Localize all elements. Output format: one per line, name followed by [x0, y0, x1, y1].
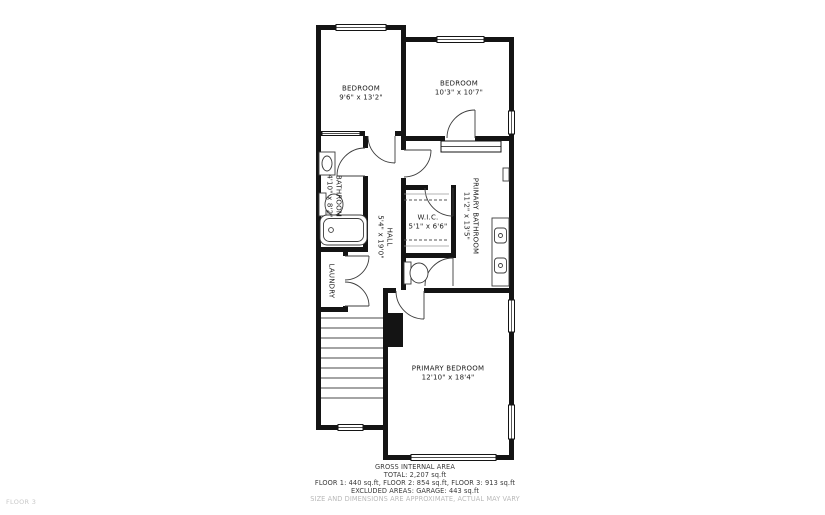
door-arc-laundry-bottom: [345, 282, 369, 306]
door-arc-laundry-top: [345, 256, 369, 280]
room-name: PRIMARY BEDROOM: [412, 365, 484, 374]
room-label-bathroom: BATHROOM 4'10" x 8'2": [326, 174, 343, 218]
room-name: HALL: [385, 215, 394, 259]
floor-plan-drawing: [0, 0, 825, 515]
area-summary: GROSS INTERNAL AREA TOTAL: 2,207 sq.ft F…: [265, 463, 565, 503]
shower-icon: [503, 168, 509, 181]
area-summary-total: TOTAL: 2,207 sq.ft: [265, 471, 565, 479]
sink-icon: [319, 152, 335, 175]
room-dimensions: 9'6" x 13'2": [339, 93, 383, 102]
toilet-icon: [404, 262, 428, 284]
room-dimensions: 12'10" x 18'4": [412, 373, 484, 382]
floor-plan: BEDROOM 9'6" x 13'2" BEDROOM 10'3" x 10'…: [0, 0, 825, 515]
room-label-wic: W.I.C. 5'1" x 6'6": [409, 214, 448, 231]
room-dimensions: 11'2" x 13'5": [463, 178, 472, 255]
room-name: LAUNDRY: [327, 264, 336, 299]
door-arc-bathroom: [337, 148, 365, 176]
door-arc-water-closet: [425, 258, 453, 286]
bathtub-icon: [320, 215, 367, 245]
room-label-bedroom-left: BEDROOM 9'6" x 13'2": [339, 85, 383, 102]
vanity-icon: [492, 218, 509, 286]
room-label-primary-bedroom: PRIMARY BEDROOM 12'10" x 18'4": [412, 365, 484, 382]
door-arc-wic: [425, 188, 453, 216]
room-name: BEDROOM: [339, 85, 383, 94]
area-summary-excluded: EXCLUDED AREAS: GARAGE: 443 sq.ft: [265, 487, 565, 495]
room-label-laundry: LAUNDRY: [327, 264, 336, 299]
area-summary-disclaimer: SIZE AND DIMENSIONS ARE APPROXIMATE, ACT…: [265, 495, 565, 503]
room-dimensions: 10'3" x 10'7": [435, 88, 483, 97]
room-label-hall: HALL 5'4" x 19'0": [377, 215, 394, 259]
room-label-bedroom-right: BEDROOM 10'3" x 10'7": [435, 80, 483, 97]
area-summary-floors: FLOOR 1: 440 sq.ft, FLOOR 2: 854 sq.ft, …: [265, 479, 565, 487]
room-name: W.I.C.: [409, 214, 448, 223]
area-summary-title: GROSS INTERNAL AREA: [265, 463, 565, 471]
room-name: PRIMARY BATHROOM: [471, 178, 480, 255]
door-arc-bedroom-right: [447, 110, 475, 138]
room-dimensions: 5'4" x 19'0": [377, 215, 386, 259]
room-name: BATHROOM: [334, 174, 343, 218]
room-dimensions: 5'1" x 6'6": [409, 222, 448, 231]
staircase: [321, 318, 383, 398]
floor-watermark: FLOOR 3: [6, 498, 36, 506]
room-dimensions: 4'10" x 8'2": [326, 174, 335, 218]
room-label-primary-bathroom: PRIMARY BATHROOM 11'2" x 13'5": [463, 178, 480, 255]
door-arc-suite-entry: [404, 150, 431, 177]
door-arc-bedroom-left: [368, 136, 395, 163]
room-name: BEDROOM: [435, 80, 483, 89]
